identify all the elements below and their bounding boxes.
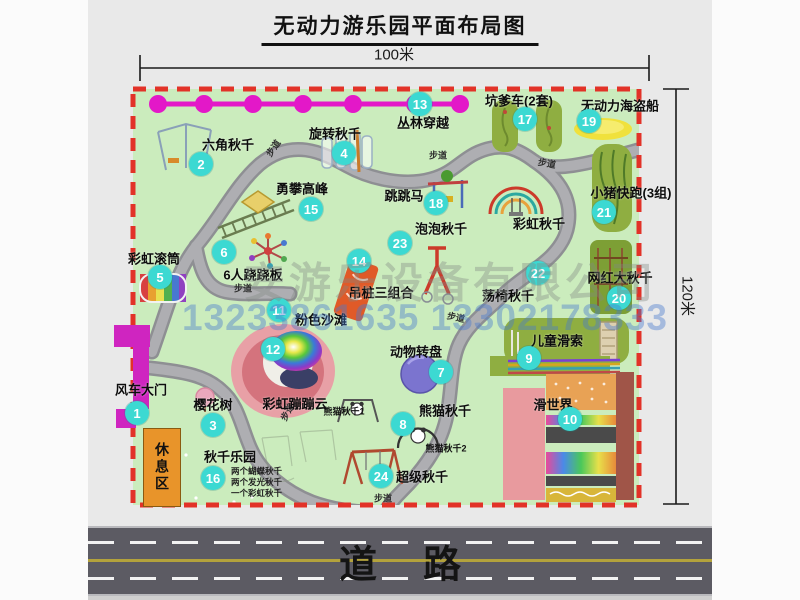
panda-swing-2-label: 熊猫秋千2	[425, 442, 466, 455]
attraction-label-23: 泡泡秋千	[415, 219, 467, 238]
attraction-label-18: 跳跳马	[384, 186, 423, 205]
attraction-label-17: 坑爹车(2套)	[485, 91, 553, 110]
attraction-badge-5: 5	[148, 265, 172, 289]
attraction-badge-8: 8	[391, 412, 415, 436]
attraction-badge-10: 10	[558, 407, 582, 431]
attraction-badge-15: 15	[299, 197, 323, 221]
attraction-badge-1: 1	[125, 401, 149, 425]
screenshot: 无动力游乐园平面布局图	[0, 0, 800, 600]
attraction-label-22: 荡椅秋千	[482, 286, 534, 305]
rest-area: 休息区	[143, 428, 181, 507]
height-dimension-label: 120米	[678, 276, 699, 316]
attraction-label-5: 彩虹滚筒	[128, 249, 180, 268]
attraction-badge-22: 22	[526, 261, 550, 285]
attraction-label-1: 风车大门	[115, 380, 167, 399]
walkway-label-6: 步道	[374, 492, 392, 505]
attraction-label-7: 动物转盘	[390, 342, 442, 361]
attraction-badge-23: 23	[388, 231, 412, 255]
attraction-label-24: 超级秋千	[396, 467, 448, 486]
swing-note-3: 一个彩虹秋千	[231, 487, 282, 499]
attraction-label-9: 儿童滑索	[531, 331, 583, 350]
walkway-label-2: 步道	[429, 149, 447, 162]
attraction-label-21: 小猪快跑(3组)	[591, 183, 672, 202]
rainbow-swing-label: 彩虹秋千	[513, 214, 565, 233]
attraction-label-2: 六角秋千	[202, 135, 254, 154]
attraction-badge-12: 12	[261, 337, 285, 361]
road: 道路	[88, 526, 712, 596]
attraction-badge-2: 2	[189, 152, 213, 176]
attraction-badge-18: 18	[424, 191, 448, 215]
attraction-badge-20: 20	[607, 286, 631, 310]
attraction-label-14: 吊桩三组合	[348, 283, 413, 302]
attraction-badge-7: 7	[429, 360, 453, 384]
attraction-label-15: 勇攀高峰	[276, 179, 328, 198]
attraction-label-6: 6人跷跷板	[223, 265, 282, 284]
attraction-badge-13: 13	[408, 92, 432, 116]
width-dimension-label: 100米	[374, 44, 414, 65]
attraction-badge-3: 3	[201, 413, 225, 437]
attraction-label-16: 秋千乐园	[204, 447, 256, 466]
attraction-badge-6: 6	[212, 240, 236, 264]
attraction-badge-11: 11	[267, 298, 291, 322]
attraction-label-20: 网红大秋千	[587, 268, 652, 287]
panda-swing-1-label: 熊猫秋千1	[323, 405, 364, 418]
attraction-label-3: 樱花树	[193, 395, 232, 414]
road-label: 道路	[293, 534, 507, 589]
attraction-badge-17: 17	[513, 107, 537, 131]
attraction-label-8: 熊猫秋千	[419, 401, 471, 420]
attraction-label-4: 旋转秋千	[309, 124, 361, 143]
attraction-badge-16: 16	[201, 466, 225, 490]
attraction-badge-19: 19	[577, 109, 601, 133]
attraction-badge-21: 21	[592, 200, 616, 224]
attraction-badge-4: 4	[332, 141, 356, 165]
attraction-badge-9: 9	[517, 346, 541, 370]
rest-area-label: 休息区	[152, 442, 172, 493]
attraction-badge-24: 24	[369, 464, 393, 488]
attraction-badge-14: 14	[347, 249, 371, 273]
attraction-label-11: 粉色沙滩	[295, 310, 347, 329]
attraction-label-12: 彩虹蹦蹦云	[262, 394, 327, 413]
